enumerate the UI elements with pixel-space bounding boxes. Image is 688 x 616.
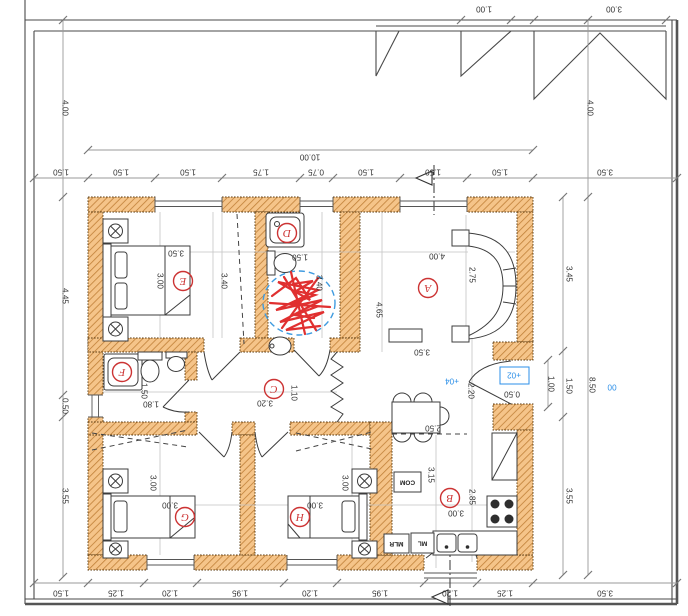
dim-right-1: 1.50 — [565, 378, 574, 394]
dim-b-dining: 2.50 — [425, 424, 441, 433]
appliance-ml-label: ML — [418, 540, 427, 547]
level-plus02: +02 — [507, 371, 521, 380]
room-label-f: F — [118, 366, 126, 378]
dim-b-width: 3.00 — [448, 509, 464, 518]
dim-bottom-4: 1.20 — [302, 589, 318, 598]
room-label-g: G — [181, 511, 189, 523]
dim-h-width: 3.00 — [307, 501, 323, 510]
dim-top-8: 3.50 — [597, 168, 613, 177]
dim-h-depth: 3.00 — [341, 475, 350, 491]
dim-right-4: 4.00 — [586, 100, 595, 116]
room-label-d: D — [283, 227, 292, 239]
dim-a-width: 4.00 — [429, 252, 445, 261]
dim-left-0: 4.00 — [61, 100, 70, 116]
dim-a-bottom: 3.50 — [414, 348, 430, 357]
room-label-c: C — [270, 383, 278, 395]
dim-roof-small: 1.00 — [476, 5, 492, 14]
stove — [487, 496, 517, 527]
dim-f-depth: 1.50 — [140, 383, 149, 399]
dim-left-3: 3.55 — [61, 488, 70, 504]
dim-top-6: 1.50 — [425, 168, 441, 177]
dim-top-3: 1.75 — [253, 168, 269, 177]
level-plus04: +04 — [445, 377, 459, 386]
roof-gable-small — [376, 31, 511, 76]
appliance-com-label: COM — [400, 479, 415, 486]
room-label-h: H — [295, 511, 305, 523]
dim-e-width: 3.50 — [168, 249, 184, 258]
dim-bottom-7: 1.25 — [497, 589, 513, 598]
dim-b-depth1: 3.15 — [427, 467, 436, 483]
dim-g-width: 3.00 — [162, 501, 178, 510]
dim-roof-large: 3.00 — [606, 5, 622, 14]
roof-gable-large — [534, 31, 666, 99]
living-room-sofa — [389, 230, 516, 342]
dim-a-alcove: 2.75 — [468, 267, 477, 283]
dim-d-width: 1.50 — [292, 253, 308, 262]
dim-top-2: 1.50 — [180, 168, 196, 177]
dim-top-0: 1.50 — [53, 168, 69, 177]
dim-bottom-5: 1.95 — [372, 589, 388, 598]
dim-e-depth: 3.00 — [156, 273, 165, 289]
dim-bottom-0: 1.50 — [53, 589, 69, 598]
dim-top-1: 1.50 — [113, 168, 129, 177]
dim-c-width: 1.10 — [290, 385, 299, 401]
dim-d-length: 3.40 — [315, 275, 324, 291]
zigzag-break — [331, 352, 343, 422]
level-zero: 00 — [607, 383, 617, 392]
dim-b-depth2: 2.85 — [468, 489, 477, 505]
dim-right-3: 1.00 — [547, 376, 556, 392]
dim-hall-length: 3.40 — [220, 273, 229, 289]
dim-top-4: 0.75 — [308, 168, 324, 177]
dim-b-door: 2.20 — [467, 383, 476, 399]
dim-bottom-1: 1.25 — [108, 589, 124, 598]
room-label-e: E — [179, 275, 187, 287]
dim-right-2: 3.55 — [565, 488, 574, 504]
dim-bottom-2: 1.20 — [162, 589, 178, 598]
dim-g-depth: 3.00 — [149, 475, 158, 491]
dim-right-0: 3.45 — [565, 266, 574, 282]
room-label-b: B — [446, 492, 453, 504]
dim-right-5: 8.50 — [588, 377, 597, 393]
room-label-a: A — [424, 282, 432, 294]
dim-bottom-3: 1.95 — [232, 589, 248, 598]
floor-plan-canvas: A B C D E F G H 1.50 1.50 1.50 1.75 0.75… — [0, 0, 688, 616]
dim-top-overall: 10.00 — [299, 153, 320, 162]
dim-top-5: 1.50 — [358, 168, 374, 177]
bedroom-e-furniture — [103, 219, 190, 341]
dim-b-entry: 0.50 — [504, 390, 520, 399]
dim-top-7: 1.50 — [492, 168, 508, 177]
appliance-mlr-label: MLR — [389, 540, 403, 547]
dim-left-1: 4.45 — [61, 288, 70, 304]
dim-f-width: 1.80 — [143, 400, 159, 409]
floor-plan-screenshot: A B C D E F G H 1.50 1.50 1.50 1.75 0.75… — [0, 0, 688, 616]
dim-bottom-8: 3.50 — [597, 589, 613, 598]
coffee-table — [389, 329, 422, 342]
dim-bottom-6: 1.20 — [442, 589, 458, 598]
dim-left-2: 0.50 — [61, 398, 70, 414]
dim-a-length: 4.65 — [375, 302, 384, 318]
dim-c-length: 3.20 — [257, 399, 273, 408]
